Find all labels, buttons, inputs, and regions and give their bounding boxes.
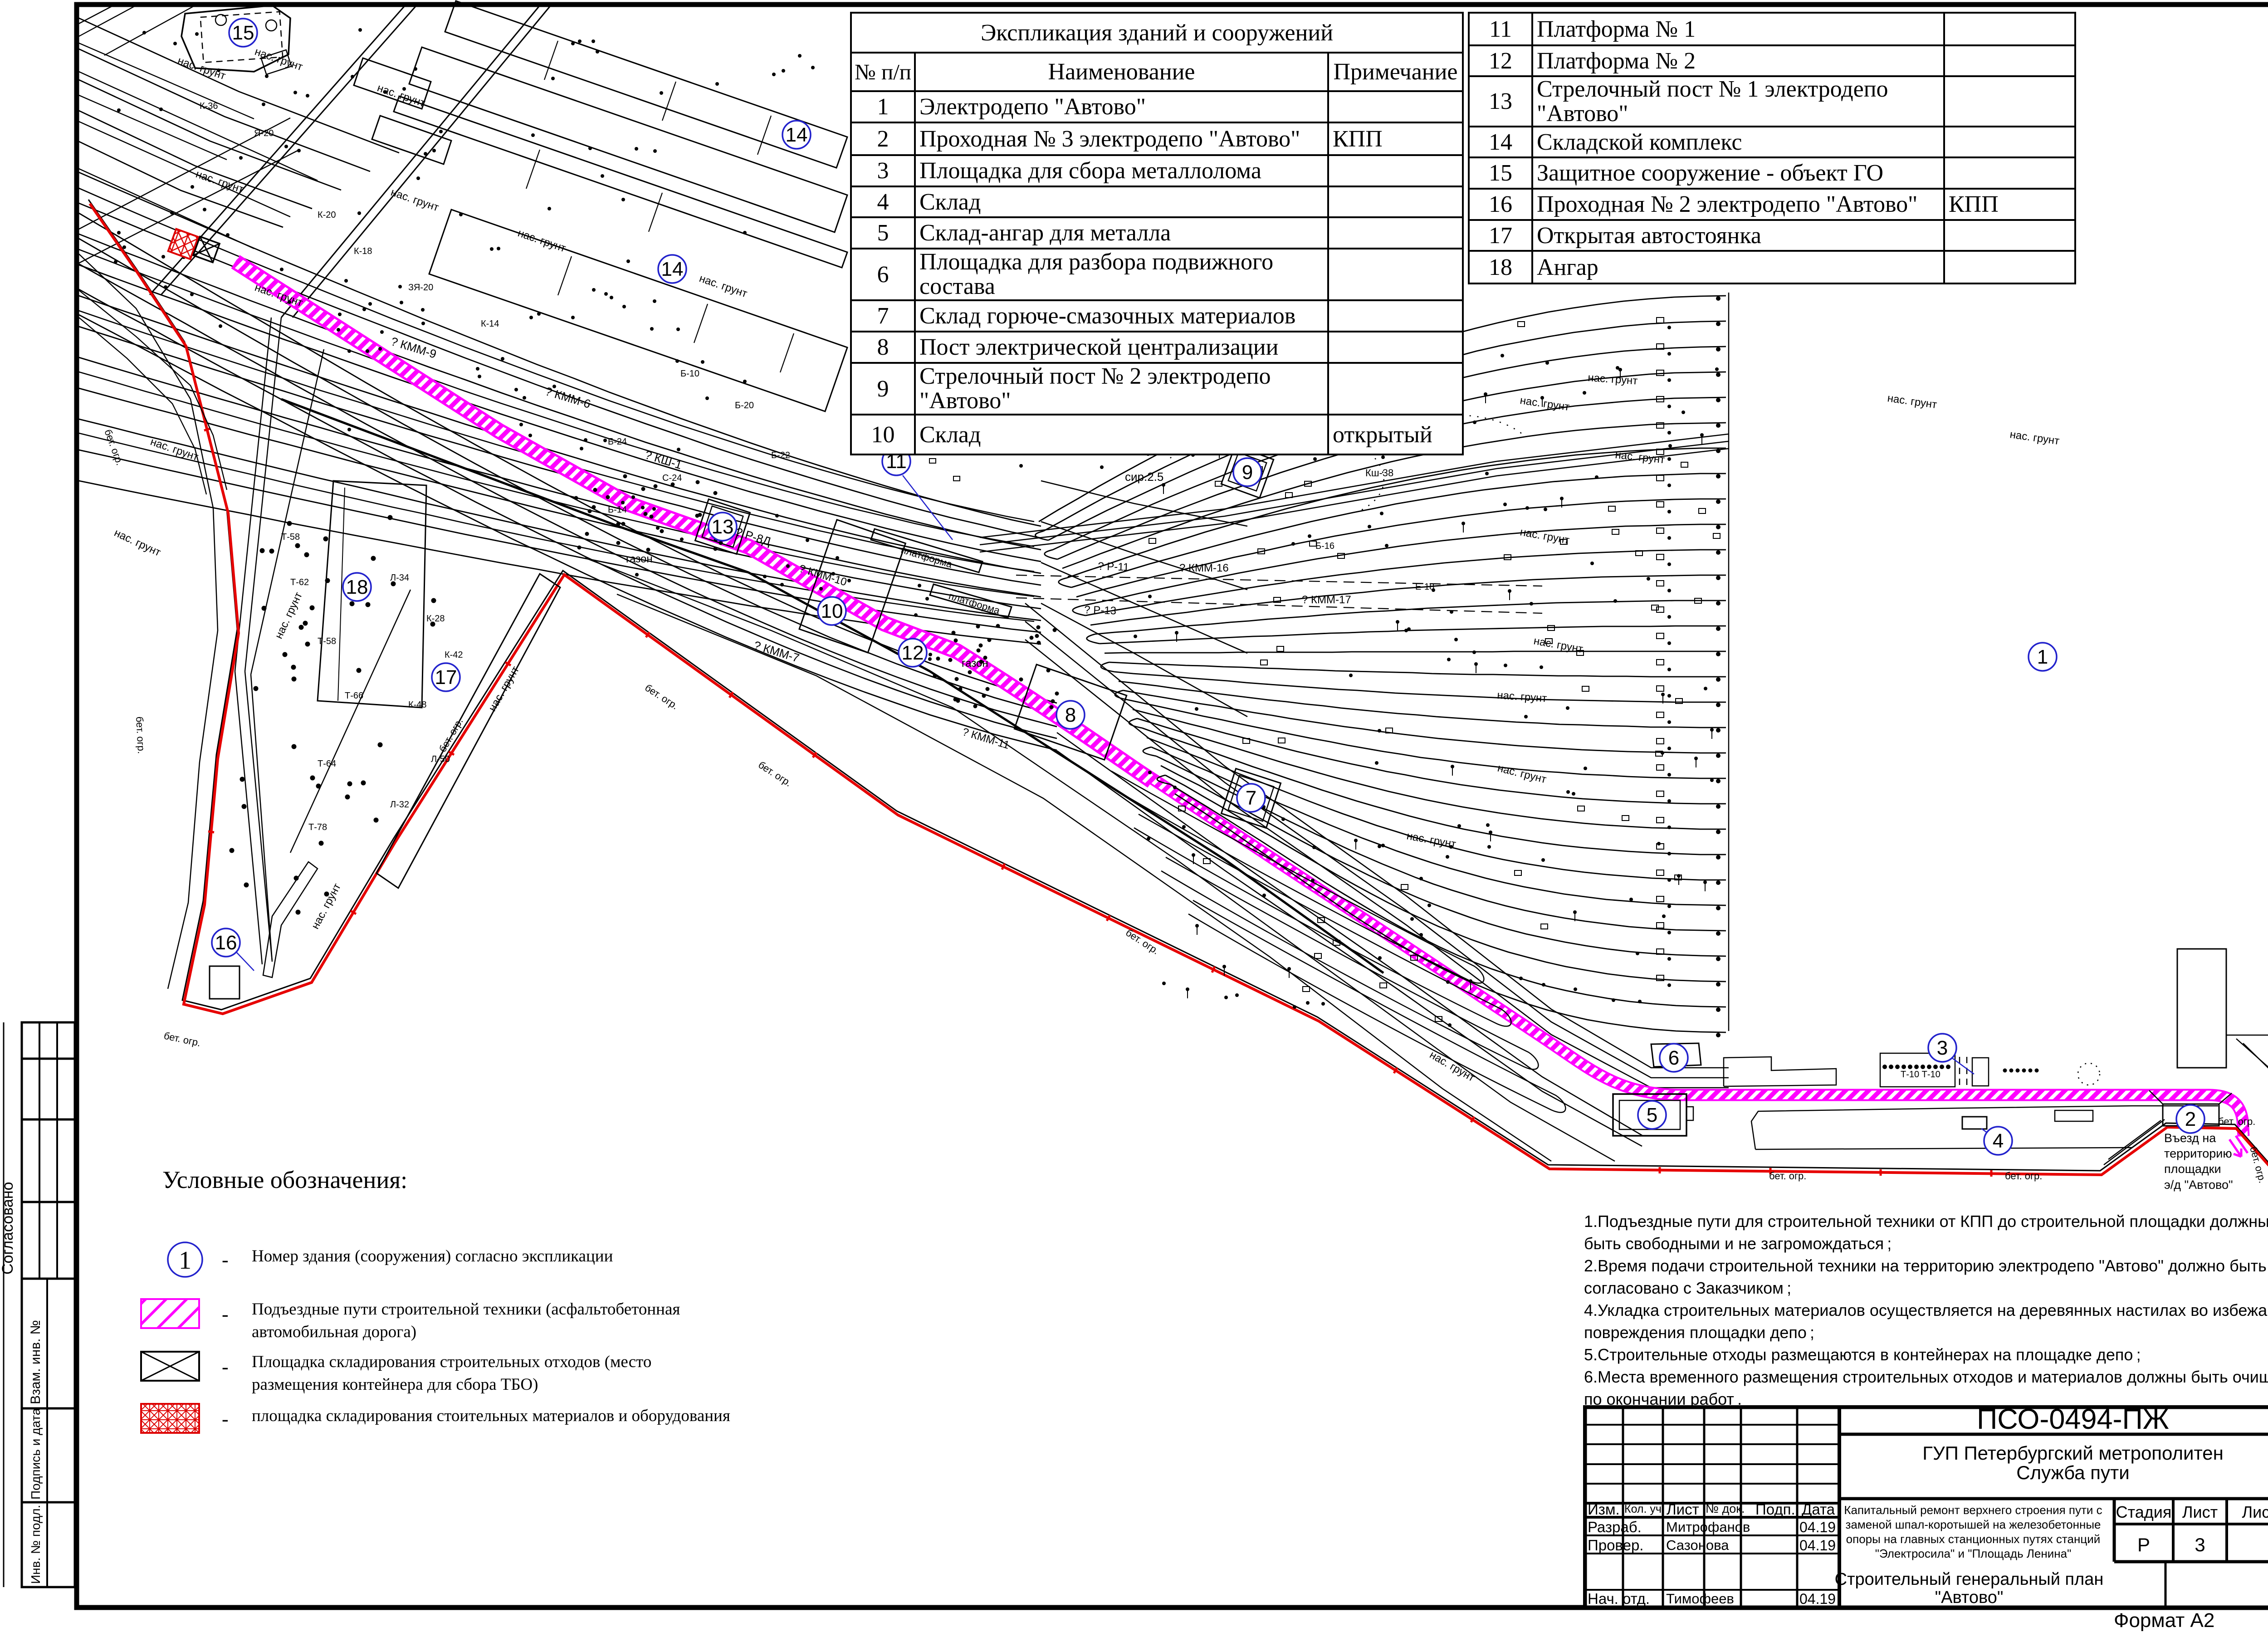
- svg-text:Нач. отд.: Нач. отд.: [1588, 1590, 1650, 1607]
- svg-text:18: 18: [346, 576, 368, 598]
- svg-text:Б-24: Б-24: [608, 437, 627, 447]
- svg-text:04.19: 04.19: [1799, 1519, 1836, 1535]
- svg-text:Т-78: Т-78: [308, 822, 327, 832]
- svg-text:площадки: площадки: [2164, 1162, 2221, 1176]
- svg-text:Л-32: Л-32: [390, 800, 409, 810]
- svg-text:Митрофанов: Митрофанов: [1666, 1519, 1750, 1535]
- svg-text:нас. грунт: нас. грунт: [698, 272, 749, 300]
- svg-text:нас. грунт: нас. грунт: [1614, 449, 1665, 466]
- svg-text:? КММ-7: ? КММ-7: [752, 638, 801, 665]
- svg-text:бет. огр.: бет. огр.: [756, 759, 794, 789]
- svg-text:К-20: К-20: [318, 210, 336, 220]
- svg-text:Строительный генеральный план: Строительный генеральный план: [1835, 1570, 2104, 1589]
- svg-text:нас. грунт: нас. грунт: [1496, 762, 1548, 786]
- svg-text:нас. грунт: нас. грунт: [112, 527, 162, 559]
- svg-text:14: 14: [786, 124, 808, 146]
- svg-text:бет. огр.: бет. огр.: [2005, 1170, 2042, 1182]
- svg-text:нас. грунт: нас. грунт: [1497, 689, 1548, 705]
- svg-text:Б-16: Б-16: [1315, 541, 1334, 551]
- svg-text:Р: Р: [2137, 1534, 2150, 1555]
- svg-text:Изм.: Изм.: [1588, 1501, 1620, 1518]
- svg-text:нас. грунт: нас. грунт: [1427, 1049, 1477, 1084]
- svg-text:3: 3: [2195, 1534, 2205, 1555]
- svg-text:Кол. уч.: Кол. уч.: [1624, 1503, 1665, 1515]
- svg-text:Листов: Листов: [2242, 1503, 2268, 1521]
- svg-text:Т-58: Т-58: [281, 532, 300, 542]
- svg-text:Б-22: Б-22: [771, 450, 790, 460]
- svg-text:нас. грунт: нас. грунт: [194, 168, 245, 195]
- svg-text:Провер.: Провер.: [1588, 1537, 1643, 1554]
- svg-text:газон: газон: [962, 657, 988, 669]
- svg-text:нас. грунт: нас. грунт: [176, 54, 227, 82]
- svg-text:-: -: [222, 1303, 229, 1325]
- svg-text:К-18: К-18: [354, 246, 372, 256]
- svg-text:бет. огр.: бет. огр.: [1769, 1170, 1806, 1182]
- svg-text:Т-62: Т-62: [290, 577, 309, 587]
- svg-text:Е-18: Е-18: [1415, 582, 1434, 592]
- svg-text:бет. огр.: бет. огр.: [643, 682, 680, 712]
- svg-text:сир.2.5: сир.2.5: [1125, 470, 1163, 484]
- svg-text:нас. грунт: нас. грунт: [273, 590, 305, 640]
- svg-text:Согласовано: Согласовано: [0, 1182, 16, 1275]
- svg-text:Лист: Лист: [1667, 1501, 1699, 1518]
- svg-text:бет. огр.: бет. огр.: [163, 1030, 202, 1049]
- svg-text:нас. грунт: нас. грунт: [149, 435, 200, 463]
- svg-text:нас. грунт: нас. грунт: [1887, 392, 1938, 411]
- svg-text:нас. грунт: нас. грунт: [309, 881, 343, 931]
- svg-text:нас. грунт: нас. грунт: [389, 186, 440, 214]
- svg-text:Б-14: Б-14: [608, 505, 627, 515]
- svg-text:бет. огр.: бет. огр.: [102, 428, 126, 467]
- svg-text:нас. грунт: нас. грунт: [1519, 526, 1570, 547]
- svg-text:04.19: 04.19: [1799, 1591, 1836, 1607]
- svg-text:нас. грунт: нас. грунт: [1588, 371, 1638, 387]
- svg-text:"Электросила" и "Площадь Ленин: "Электросила" и "Площадь Ленина": [1875, 1547, 2072, 1560]
- svg-text:Т-64: Т-64: [318, 759, 336, 769]
- svg-text:? КММ-17: ? КММ-17: [1302, 594, 1351, 606]
- svg-text:Инв. № подл.: Инв. № подл.: [29, 1505, 43, 1584]
- svg-text:бет. огр.: бет. огр.: [2248, 1145, 2268, 1184]
- svg-text:Л-34: Л-34: [390, 573, 409, 583]
- svg-text:Подпись и дата: Подпись и дата: [29, 1408, 43, 1500]
- svg-text:9: 9: [1242, 461, 1253, 484]
- svg-text:К-48: К-48: [408, 700, 427, 710]
- svg-text:5: 5: [1647, 1104, 1657, 1126]
- svg-text:К-28: К-28: [426, 614, 445, 624]
- svg-text:Разраб.: Разраб.: [1588, 1519, 1642, 1535]
- svg-text:нас. грунт: нас. грунт: [376, 82, 427, 109]
- svg-text:04.19: 04.19: [1799, 1537, 1836, 1554]
- svg-text:6: 6: [1668, 1047, 1679, 1069]
- svg-text:? КММ-16: ? КММ-16: [1179, 562, 1229, 574]
- svg-text:Б-20: Б-20: [735, 401, 754, 410]
- svg-text:ЗЯ-20: ЗЯ-20: [408, 283, 433, 293]
- svg-text:№ док.: № док.: [1706, 1502, 1745, 1515]
- svg-text:Т-66: Т-66: [345, 691, 363, 701]
- svg-text:платформа: платформа: [900, 544, 954, 570]
- svg-text:нас. грунт: нас. грунт: [1533, 635, 1584, 655]
- svg-text:12: 12: [902, 642, 924, 664]
- svg-text:заменой шпал-коротышей на желе: заменой шпал-коротышей на железобетонные: [1846, 1518, 2101, 1531]
- svg-text:3: 3: [1937, 1037, 1948, 1059]
- svg-text:К-14: К-14: [481, 319, 499, 329]
- svg-text:? КШ-1: ? КШ-1: [643, 448, 684, 472]
- svg-text:ПСО-0494-ПЖ: ПСО-0494-ПЖ: [1977, 1405, 2169, 1435]
- svg-text:Стадия: Стадия: [2116, 1503, 2172, 1521]
- svg-text:15: 15: [232, 22, 254, 44]
- svg-text:нас. грунт: нас. грунт: [516, 227, 567, 254]
- svg-text:С-24: С-24: [662, 473, 682, 483]
- svg-text:Т-10 Т-10: Т-10 Т-10: [1901, 1070, 1941, 1080]
- svg-text:16: 16: [215, 932, 237, 954]
- svg-text:13: 13: [712, 516, 734, 538]
- svg-text:нас. грунт: нас. грунт: [1406, 830, 1457, 850]
- svg-text:Л-50: Л-50: [431, 754, 450, 764]
- svg-text:Взам. инв. №: Взам. инв. №: [28, 1320, 43, 1404]
- svg-text:-: -: [222, 1249, 229, 1271]
- svg-text:17: 17: [435, 666, 457, 689]
- svg-text:"Автово": "Автово": [1935, 1588, 2004, 1607]
- svg-text:-: -: [222, 1408, 229, 1430]
- svg-text:14: 14: [661, 258, 684, 280]
- svg-text:Подп.: Подп.: [1755, 1501, 1795, 1518]
- svg-text:Дата: Дата: [1802, 1501, 1835, 1518]
- svg-text:7: 7: [1246, 787, 1256, 809]
- svg-text:К-36: К-36: [200, 101, 218, 111]
- svg-text:? КММ-6: ? КММ-6: [543, 384, 592, 411]
- svg-text:2: 2: [2185, 1108, 2196, 1130]
- svg-text:4: 4: [1993, 1130, 2004, 1152]
- svg-text:8: 8: [1065, 704, 1076, 726]
- svg-text:К-42: К-42: [445, 650, 463, 660]
- svg-text:Кш-38: Кш-38: [1365, 467, 1393, 479]
- svg-text:ГУП Петербургский метрополитен: ГУП Петербургский метрополитен: [1922, 1442, 2224, 1464]
- svg-text:нас. грунт: нас. грунт: [2009, 428, 2060, 447]
- svg-text:территорию: территорию: [2164, 1147, 2232, 1160]
- svg-text:1: 1: [2037, 646, 2048, 668]
- svg-text:Сазонова: Сазонова: [1666, 1537, 1729, 1553]
- svg-text:Капитальный ремонт верхнего ст: Капитальный ремонт верхнего строения пут…: [1844, 1503, 2102, 1517]
- svg-text:бет. огр.: бет. огр.: [2218, 1116, 2255, 1127]
- svg-text:Я-20: Я-20: [254, 128, 274, 138]
- svg-text:опоры на главных станционных п: опоры на главных станционных путях станц…: [1846, 1532, 2101, 1546]
- svg-text:Б-10: Б-10: [680, 369, 699, 379]
- svg-text:бет. огр.: бет. огр.: [134, 716, 147, 754]
- svg-text:Тимофеев: Тимофеев: [1666, 1591, 1734, 1607]
- svg-text:Т-58: Т-58: [318, 636, 336, 646]
- svg-text:Лист: Лист: [2182, 1503, 2218, 1521]
- svg-text:Служба пути: Служба пути: [2016, 1462, 2129, 1483]
- svg-text:1: 1: [179, 1246, 191, 1275]
- svg-text:10: 10: [821, 600, 843, 622]
- svg-text:э/д "Автово": э/д "Автово": [2164, 1178, 2233, 1192]
- svg-text:газон: газон: [626, 553, 653, 565]
- svg-text:-: -: [222, 1356, 229, 1378]
